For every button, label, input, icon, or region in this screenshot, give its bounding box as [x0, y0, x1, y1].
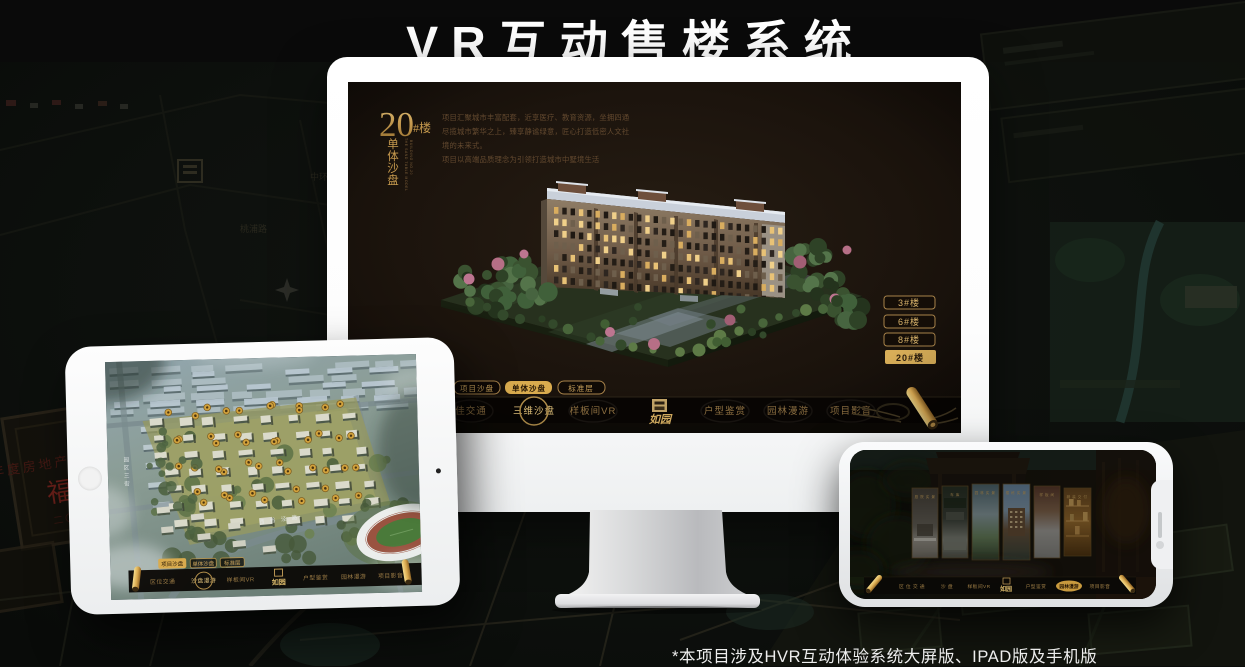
- svg-text:样板间VR: 样板间VR: [967, 583, 990, 590]
- svg-text:如园: 如园: [272, 577, 286, 586]
- svg-text:沙 盘: 沙 盘: [941, 583, 953, 590]
- svg-text:如园: 如园: [1000, 585, 1012, 593]
- svg-text:区: 区: [124, 464, 130, 471]
- svg-text:区 位 交 通: 区 位 交 通: [899, 583, 925, 590]
- svg-text:桃浦路: 桃浦路: [240, 223, 267, 234]
- svg-text:街: 街: [124, 479, 130, 487]
- svg-text:三: 三: [124, 472, 130, 479]
- svg-text:园林漫游: 园林漫游: [1059, 583, 1078, 590]
- svg-text:项目影音: 项目影音: [1090, 583, 1111, 590]
- svg-text:园: 园: [123, 456, 129, 463]
- svg-text:户型鉴赏: 户型鉴赏: [1026, 583, 1047, 590]
